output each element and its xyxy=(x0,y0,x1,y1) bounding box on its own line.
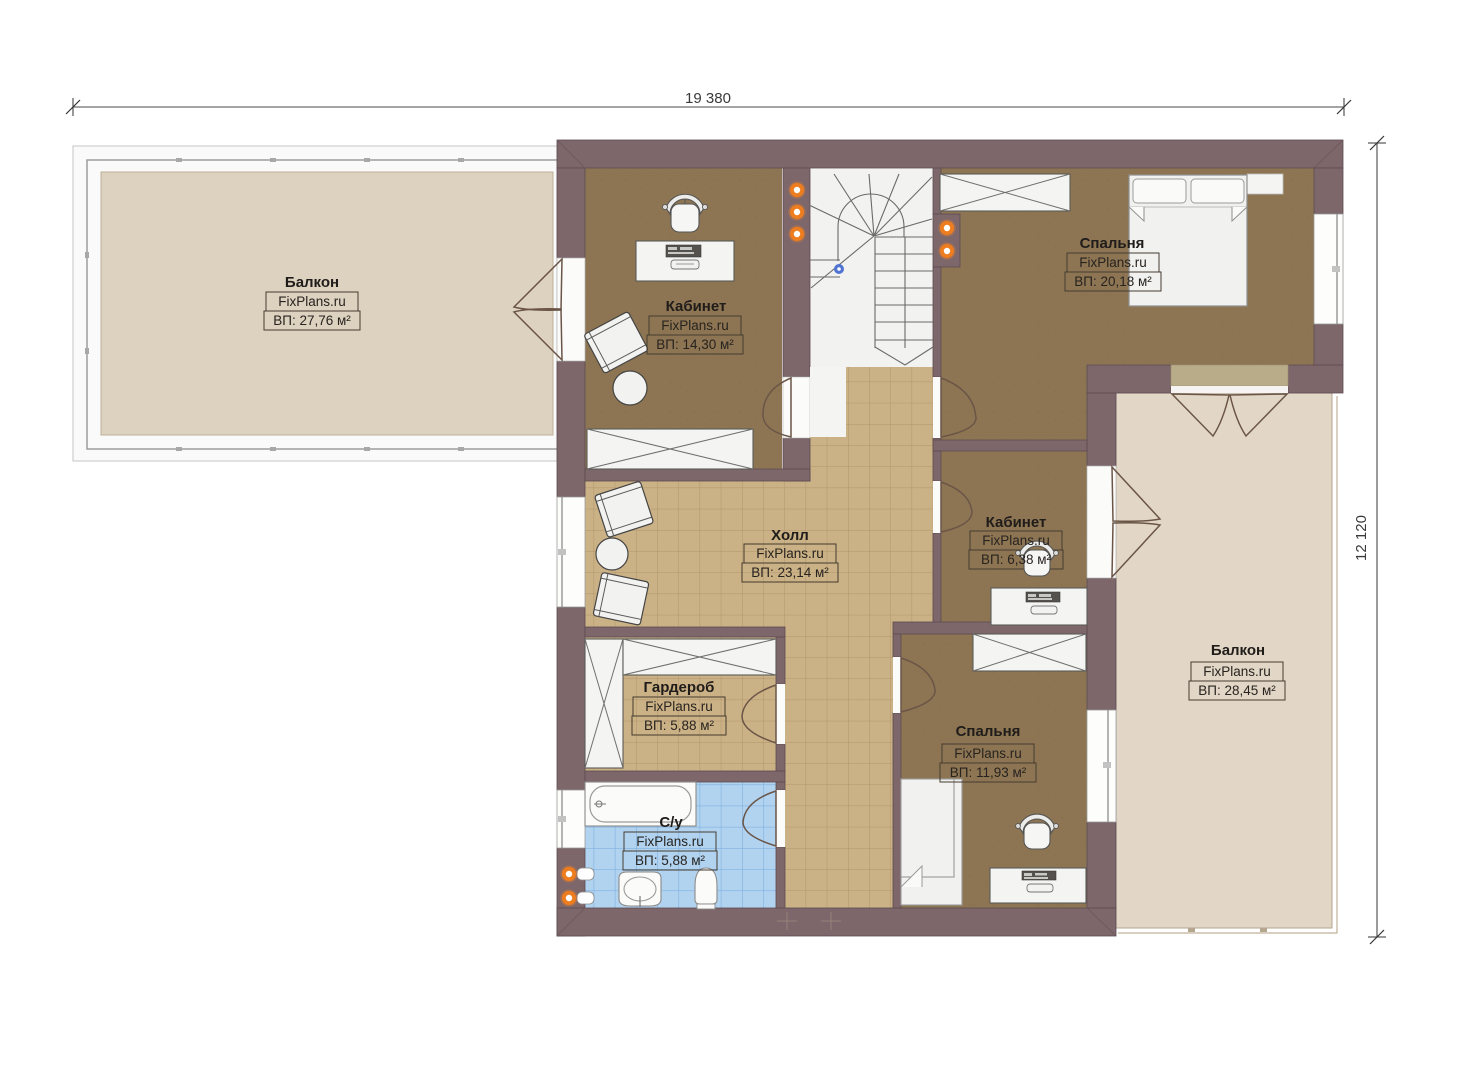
svg-text:FixPlans.ru: FixPlans.ru xyxy=(636,834,704,849)
svg-text:С/у: С/у xyxy=(659,814,683,831)
svg-text:ВП: 5,88 м²: ВП: 5,88 м² xyxy=(644,718,715,733)
svg-text:ВП: 27,76 м²: ВП: 27,76 м² xyxy=(273,313,351,328)
svg-text:12 120: 12 120 xyxy=(1353,515,1370,561)
svg-text:ВП: 14,30 м²: ВП: 14,30 м² xyxy=(656,337,734,352)
svg-text:ВП: 20,18 м²: ВП: 20,18 м² xyxy=(1074,274,1152,289)
svg-text:ВП: 28,45 м²: ВП: 28,45 м² xyxy=(1198,683,1276,698)
svg-text:FixPlans.ru: FixPlans.ru xyxy=(278,294,346,309)
svg-text:ВП: 11,93 м²: ВП: 11,93 м² xyxy=(950,765,1027,780)
svg-text:Кабинет: Кабинет xyxy=(986,514,1047,531)
svg-text:Кабинет: Кабинет xyxy=(666,298,727,315)
svg-text:ВП: 5,88 м²: ВП: 5,88 м² xyxy=(635,853,706,868)
svg-text:FixPlans.ru: FixPlans.ru xyxy=(982,533,1050,548)
svg-text:FixPlans.ru: FixPlans.ru xyxy=(645,699,713,714)
svg-text:FixPlans.ru: FixPlans.ru xyxy=(756,546,824,561)
svg-text:ВП: 23,14 м²: ВП: 23,14 м² xyxy=(751,565,829,580)
svg-text:FixPlans.ru: FixPlans.ru xyxy=(954,746,1022,761)
svg-text:Балкон: Балкон xyxy=(1211,642,1265,659)
svg-text:FixPlans.ru: FixPlans.ru xyxy=(1079,255,1147,270)
svg-text:ВП: 6,38 м²: ВП: 6,38 м² xyxy=(981,552,1052,567)
svg-text:FixPlans.ru: FixPlans.ru xyxy=(1203,664,1271,679)
svg-text:Холл: Холл xyxy=(771,527,809,544)
svg-text:Балкон: Балкон xyxy=(285,274,339,291)
svg-text:FixPlans.ru: FixPlans.ru xyxy=(661,318,729,333)
svg-text:19 380: 19 380 xyxy=(685,90,731,107)
svg-text:Спальня: Спальня xyxy=(956,723,1021,740)
svg-text:Спальня: Спальня xyxy=(1080,235,1145,252)
svg-text:Гардероб: Гардероб xyxy=(644,679,715,696)
